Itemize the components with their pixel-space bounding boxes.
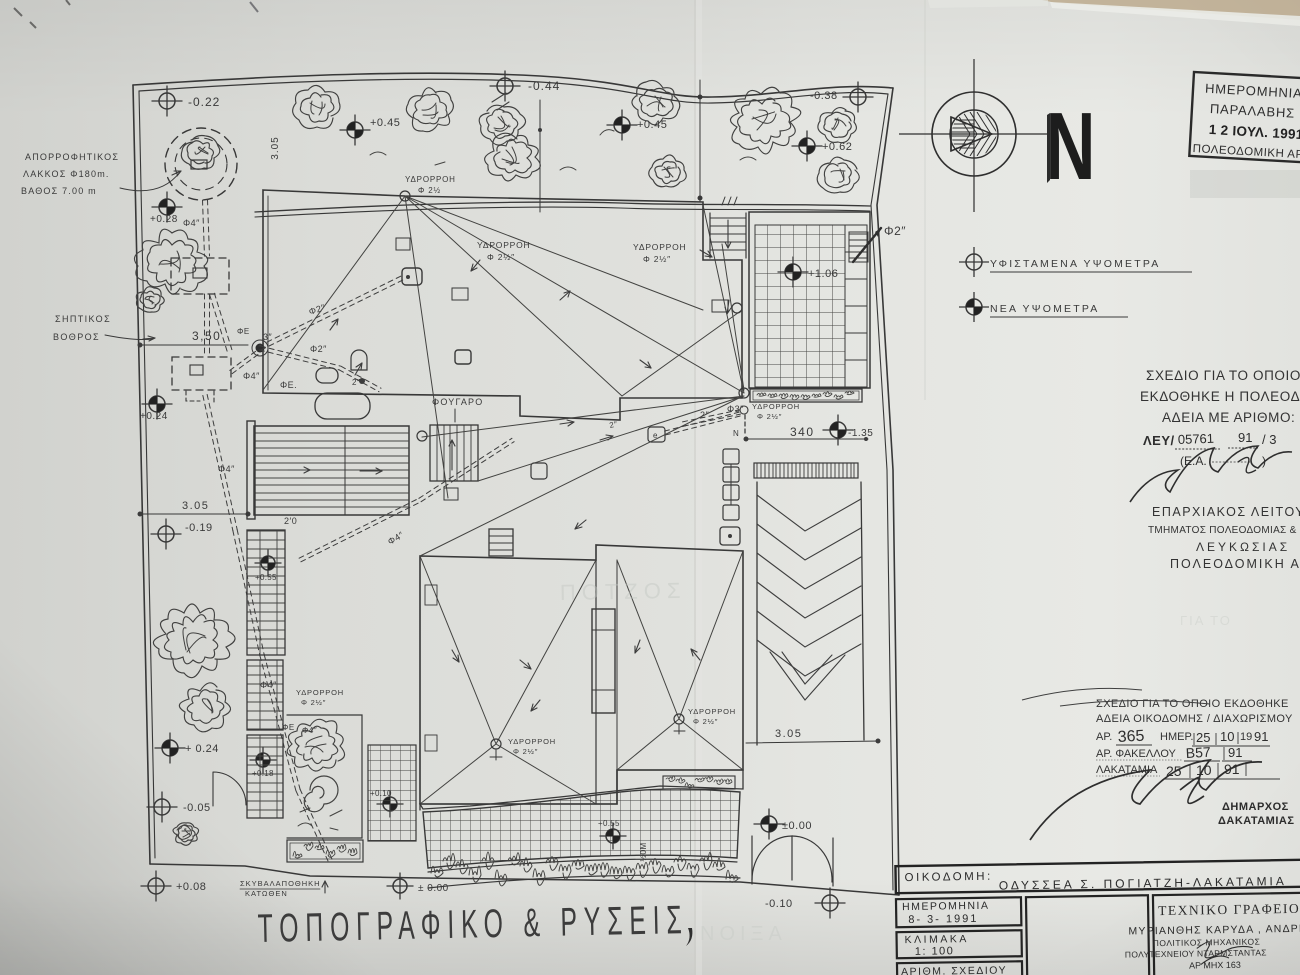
svg-text:(Ε.Α.: (Ε.Α. bbox=[1180, 454, 1207, 468]
svg-text:/ 3: / 3 bbox=[1262, 432, 1276, 447]
svg-text:ΑΔΕΙΑ ΟΙΚΟΔΟΜΗΣ / ΔΙΑΧΩΡΙΣΜ: ΑΔΕΙΑ ΟΙΚΟΔΟΜΗΣ / ΔΙΑΧΩΡΙΣΜΟΥ bbox=[1096, 713, 1293, 725]
svg-text:Φ 2½: Φ 2½ bbox=[418, 186, 441, 195]
svg-text:-0.10: -0.10 bbox=[765, 898, 793, 910]
svg-text:10: 10 bbox=[1196, 762, 1212, 778]
svg-text:ΔΑΚΑΤΑΜΙΑΣ: ΔΑΚΑΤΑΜΙΑΣ bbox=[1218, 815, 1294, 827]
svg-text:Ν: Ν bbox=[733, 429, 739, 438]
svg-text:ΦΕ: ΦΕ bbox=[282, 723, 295, 732]
svg-text:Φ2″: Φ2″ bbox=[884, 224, 906, 238]
svg-text:3.05: 3.05 bbox=[182, 500, 209, 512]
svg-text:ΑΡ. ΦΑΚΕΛΛΟΥ: ΑΡ. ΦΑΚΕΛΛΟΥ bbox=[1096, 748, 1177, 760]
svg-text:+0.55: +0.55 bbox=[255, 573, 277, 582]
svg-text:+0.08: +0.08 bbox=[176, 881, 206, 893]
svg-text:365: 365 bbox=[1117, 728, 1145, 746]
svg-text:3.05: 3.05 bbox=[270, 136, 281, 159]
svg-text:N: N bbox=[1045, 92, 1095, 200]
svg-text:ΠΟΤΖΟΣ: ΠΟΤΖΟΣ bbox=[560, 578, 687, 605]
svg-text:ΚΑΤΩΘΕΝ: ΚΑΤΩΘΕΝ bbox=[245, 889, 288, 898]
svg-text:-0.44: -0.44 bbox=[528, 79, 560, 93]
svg-text:ΥΔΡΟΡΡΟΗ: ΥΔΡΟΡΡΟΗ bbox=[633, 242, 687, 252]
svg-text:2′0: 2′0 bbox=[284, 516, 297, 526]
svg-text:± 0.00: ± 0.00 bbox=[418, 883, 449, 894]
svg-text:ΠΟΛΕΟΔΟΜΙΚΗ ΑΡΧΗ: ΠΟΛΕΟΔΟΜΙΚΗ ΑΡΧΗ bbox=[1170, 557, 1300, 571]
svg-text:ΒΑΘΟΣ 7.00 m: ΒΑΘΟΣ 7.00 m bbox=[21, 186, 97, 196]
svg-text:19: 19 bbox=[1240, 731, 1252, 743]
svg-text:-0.05: -0.05 bbox=[183, 802, 211, 814]
svg-text:Φ 2½″: Φ 2½″ bbox=[693, 717, 718, 726]
svg-text:ΑΡ ΜΗΧ 163: ΑΡ ΜΗΧ 163 bbox=[1189, 960, 1241, 971]
svg-text:ΥΔΡΟΡΡΟΗ: ΥΔΡΟΡΡΟΗ bbox=[477, 240, 531, 250]
svg-text:Φ4″: Φ4″ bbox=[218, 464, 235, 474]
svg-text:3.05: 3.05 bbox=[775, 728, 802, 740]
svg-text:91: 91 bbox=[1254, 729, 1268, 744]
svg-text:TEXNIKO ΓPAΦEIO: TEXNIKO ΓPAΦEIO bbox=[1158, 901, 1300, 918]
svg-text:-0.19: -0.19 bbox=[185, 522, 213, 534]
svg-text:+0.45: +0.45 bbox=[370, 117, 400, 129]
svg-text:91: 91 bbox=[1228, 745, 1242, 760]
svg-text:8- 3- 1991: 8- 3- 1991 bbox=[908, 913, 978, 926]
svg-text:ΤΜΗΜΑΤΟΣ ΠΟΛΕΟΔΟΜΙΑΣ & ΟΙΚΗΣΕΩ: ΤΜΗΜΑΤΟΣ ΠΟΛΕΟΔΟΜΙΑΣ & ΟΙΚΗΣΕΩΣ bbox=[1148, 525, 1300, 536]
svg-text:Φ 2½″: Φ 2½″ bbox=[487, 252, 515, 262]
svg-text:Φ 2½″: Φ 2½″ bbox=[643, 254, 671, 264]
svg-text:ΓΙΑ ΤΟ: ΓΙΑ ΤΟ bbox=[1180, 613, 1232, 628]
svg-text:Φ 2½″: Φ 2½″ bbox=[757, 412, 782, 421]
svg-text:+0.62: +0.62 bbox=[822, 141, 852, 153]
svg-text:+0.55: +0.55 bbox=[598, 819, 620, 828]
svg-text:ΑΡΙΘΜ. ΣΧΕΔΙΟΥ: ΑΡΙΘΜ. ΣΧΕΔΙΟΥ bbox=[901, 964, 1007, 975]
svg-text:+0.28: +0.28 bbox=[150, 214, 178, 225]
svg-text:ΥΔΡΟΡΡΟΗ: ΥΔΡΟΡΡΟΗ bbox=[508, 737, 556, 746]
svg-text:ΛΕΥΚΩΣΙΑΣ: ΛΕΥΚΩΣΙΑΣ bbox=[1196, 540, 1290, 554]
svg-text:ΥΔΡΟΡΡΟΗ: ΥΔΡΟΡΡΟΗ bbox=[405, 175, 456, 184]
svg-text:-1.35: -1.35 bbox=[848, 428, 873, 439]
svg-text:ΤΟΠΟΓΡΑΦΙΚΟ & ΡΥΣΕΙΣ: ΤΟΠΟΓΡΑΦΙΚΟ & ΡΥΣΕΙΣ bbox=[257, 898, 689, 951]
svg-text:91: 91 bbox=[1238, 430, 1252, 445]
svg-text:Φ4″: Φ4″ bbox=[183, 218, 200, 228]
svg-text:ΥΔΡΟΡΡΟΗ: ΥΔΡΟΡΡΟΗ bbox=[688, 707, 736, 716]
svg-text:ΟΙΚΟΔΟΜΗ:: ΟΙΚΟΔΟΜΗ: bbox=[905, 871, 993, 884]
svg-text:ΗΜΕΡ.: ΗΜΕΡ. bbox=[1160, 731, 1193, 743]
svg-text:ΔΗΜΑΡΧΟΣ: ΔΗΜΑΡΧΟΣ bbox=[1222, 801, 1289, 813]
svg-text:ΦΕ.: ΦΕ. bbox=[280, 380, 297, 390]
svg-text:ΣΚΥΒΑΛΑΠΟΘΗΚΗ: ΣΚΥΒΑΛΑΠΟΘΗΚΗ bbox=[240, 879, 321, 888]
svg-text:ΛΕΥ/: ΛΕΥ/ bbox=[1143, 433, 1175, 448]
svg-text:ΕΚΔΟΘΗΚΕ Η ΠΟΛΕΟΔΟ: ΕΚΔΟΘΗΚΕ Η ΠΟΛΕΟΔΟ bbox=[1140, 389, 1300, 404]
svg-text:Φ2″: Φ2″ bbox=[310, 344, 327, 354]
svg-text:ΒΟΘΡΟΣ: ΒΟΘΡΟΣ bbox=[53, 332, 100, 342]
svg-text:-0.38: -0.38 bbox=[810, 90, 838, 102]
svg-text:1: 100: 1: 100 bbox=[915, 945, 955, 958]
svg-text:05761: 05761 bbox=[1178, 431, 1215, 447]
svg-text:Φ4″: Φ4″ bbox=[302, 726, 317, 735]
svg-text:-0.22: -0.22 bbox=[188, 95, 220, 109]
svg-text:ΥΔΡΟΡΡΟΗ: ΥΔΡΟΡΡΟΗ bbox=[296, 688, 344, 697]
svg-text:ΑΔΕΙΑ ΜΕ ΑΡΙΘΜΟ:: ΑΔΕΙΑ ΜΕ ΑΡΙΘΜΟ: bbox=[1162, 410, 1295, 425]
svg-text:2″: 2″ bbox=[352, 378, 360, 387]
svg-text:ΣΧΕΔΙΟ ΓΙΑ ΤΟ ΟΠΟΙΟ ΕΚΔΟΘΗ: ΣΧΕΔΙΟ ΓΙΑ ΤΟ ΟΠΟΙΟ ΕΚΔΟΘΗΚΕ bbox=[1096, 698, 1289, 710]
svg-text:+0.45: +0.45 bbox=[637, 119, 667, 131]
svg-text:ΕΠΑΡΧΙΑΚΟΣ ΛΕΙΤΟΥΡΓΟΣ: ΕΠΑΡΧΙΑΚΟΣ ΛΕΙΤΟΥΡΓΟΣ bbox=[1152, 505, 1300, 519]
svg-text:ΚΛΙΜΑΚΑ: ΚΛΙΜΑΚΑ bbox=[905, 933, 969, 946]
svg-text:ΦΟΥΓΑΡΟ: ΦΟΥΓΑΡΟ bbox=[432, 397, 483, 407]
svg-text:ΦΕ: ΦΕ bbox=[237, 327, 250, 336]
svg-text:+ 0.24: + 0.24 bbox=[185, 743, 219, 755]
svg-text:340: 340 bbox=[790, 425, 815, 439]
svg-text:ΥΔΡΟΡΡΟΗ: ΥΔΡΟΡΡΟΗ bbox=[752, 402, 800, 411]
svg-text:Φ 2½″: Φ 2½″ bbox=[301, 698, 326, 707]
svg-text:ΝΕΑ ΥΨΟΜΕΤΡΑ: ΝΕΑ ΥΨΟΜΕΤΡΑ bbox=[990, 303, 1099, 315]
svg-text:±0.00: ±0.00 bbox=[782, 820, 812, 832]
svg-text:ΑΠΟΡΡΟΦΗΤΙΚΟΣ: ΑΠΟΡΡΟΦΗΤΙΚΟΣ bbox=[25, 152, 119, 162]
svg-text:ΣΧΕΔΙΟ ΓΙΑ ΤΟ ΟΠΟΙΟ: ΣΧΕΔΙΟ ΓΙΑ ΤΟ ΟΠΟΙΟ bbox=[1146, 368, 1300, 383]
svg-text:10: 10 bbox=[1220, 729, 1234, 744]
svg-text:ΗΜΕΡΟΜΗΝΙΑ: ΗΜΕΡΟΜΗΝΙΑ bbox=[902, 900, 990, 913]
svg-text:25: 25 bbox=[1196, 730, 1210, 745]
svg-text:Φ4″: Φ4″ bbox=[243, 371, 260, 381]
svg-text:ΥΦΙΣΤΑΜΕΝΑ ΥΨΟΜΕΤΡΑ: ΥΦΙΣΤΑΜΕΝΑ ΥΨΟΜΕΤΡΑ bbox=[990, 258, 1160, 270]
svg-text:+1.06: +1.06 bbox=[808, 268, 838, 280]
svg-text:ΣΗΠΤΙΚΟΣ: ΣΗΠΤΙΚΟΣ bbox=[55, 314, 111, 324]
svg-text:ΝΟΙΞΑ: ΝΟΙΞΑ bbox=[700, 923, 787, 945]
svg-text:ΑΡ.: ΑΡ. bbox=[1096, 731, 1112, 743]
svg-text:Φ 2½″: Φ 2½″ bbox=[513, 747, 538, 756]
svg-text:Β57: Β57 bbox=[1185, 744, 1211, 761]
svg-text:3,50: 3,50 bbox=[192, 329, 221, 343]
svg-text:ΛΑΚΚΟΣ Φ180m.: ΛΑΚΚΟΣ Φ180m. bbox=[23, 169, 110, 179]
svg-text:+0.24: +0.24 bbox=[140, 411, 168, 422]
